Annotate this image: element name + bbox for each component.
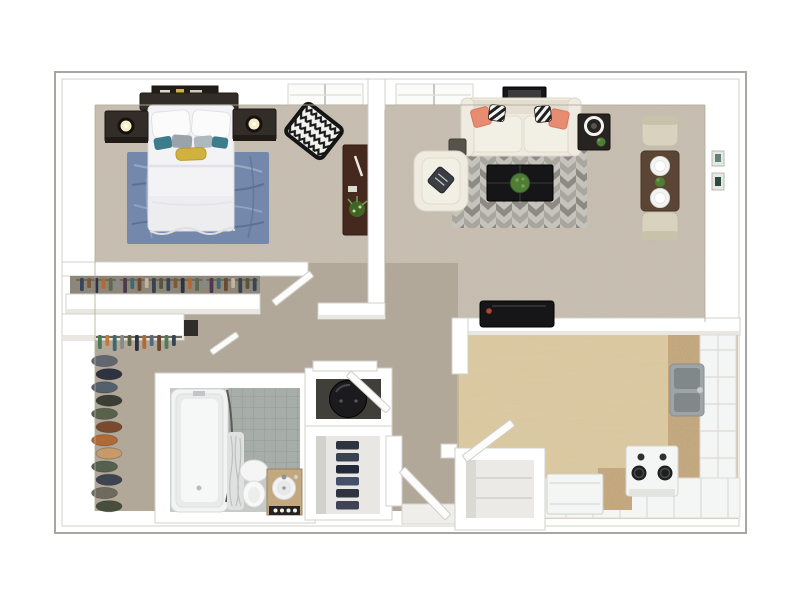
series-item: [181, 278, 185, 293]
series-item: [172, 335, 176, 346]
dishwasher: [547, 474, 603, 514]
series-item: [142, 335, 146, 349]
vanity-faucet: [282, 475, 287, 480]
series-item: [152, 278, 156, 293]
striped-pillow-right: [534, 105, 552, 123]
series-item: [336, 501, 359, 510]
accent-pillow-mustard: [176, 147, 206, 160]
bathtub: [171, 389, 232, 512]
series-item: [128, 335, 132, 346]
series-item: [224, 278, 228, 291]
series-item: [123, 278, 127, 293]
sofa: [461, 98, 581, 156]
accent-pillow-teal-right: [211, 136, 228, 149]
accent-pillow-gray: [172, 134, 193, 148]
series-item: [246, 278, 250, 289]
utility-closet: [305, 361, 392, 426]
kitchen-sink: [670, 364, 704, 416]
linen-closet: [305, 426, 392, 520]
series-item: [165, 335, 169, 349]
series-item: [336, 477, 359, 486]
series-item: [105, 335, 109, 346]
range-stove: [626, 446, 678, 496]
series-item: [96, 448, 122, 459]
series-item: [109, 278, 113, 291]
coffee-table-plant: [511, 174, 530, 193]
series-item: [253, 278, 257, 291]
kitchen-left-stub-wall: [452, 318, 468, 374]
table-centerpiece: [655, 177, 665, 187]
bed: [148, 105, 234, 234]
series-item: [336, 465, 359, 474]
series-item: [135, 335, 139, 351]
dining-chair-top: [642, 116, 678, 146]
series-item: [188, 278, 192, 289]
nightstand-right: [233, 109, 276, 141]
accent-chair: [414, 151, 468, 211]
series-item: [116, 278, 120, 288]
series-item: [120, 335, 124, 349]
pantry-closet: [441, 444, 545, 530]
series-item: [102, 278, 106, 289]
coffee-table: [487, 165, 553, 201]
accent-pillow-slate: [194, 135, 214, 149]
series-item: [217, 278, 221, 289]
dining-chair-bottom: [642, 212, 678, 240]
entry-jamb-wall: [386, 436, 402, 506]
series-item: [336, 453, 359, 462]
series-item: [138, 278, 142, 291]
series-item: [150, 335, 154, 346]
striped-pillow-left: [488, 104, 506, 122]
series-item: [113, 335, 117, 351]
series-item: [87, 278, 91, 288]
series-item: [336, 489, 359, 498]
series-item: [98, 335, 102, 349]
series-item: [336, 441, 359, 450]
closet-back-wall: [62, 262, 308, 276]
series-item: [174, 278, 178, 288]
series-item: [96, 369, 122, 380]
nightstand-left: [105, 111, 148, 143]
tub-drain: [197, 486, 202, 491]
floor-plan-rendering: [0, 0, 800, 600]
dining-set: [641, 116, 679, 240]
sink-faucet: [697, 387, 703, 393]
series-item: [238, 278, 242, 293]
bathroom: [155, 373, 315, 523]
series-item: [96, 474, 122, 485]
series-item: [195, 278, 199, 291]
series-item: [96, 395, 122, 406]
series-item: [130, 278, 134, 289]
series-item: [80, 278, 84, 291]
bed-pillow-right: [191, 109, 231, 138]
series-item: [202, 278, 206, 288]
bathroom-vanity: [267, 469, 302, 515]
tub-faucet: [193, 391, 205, 396]
series-item: [157, 335, 161, 351]
stove-drawer: [629, 489, 675, 495]
series-item: [159, 278, 163, 289]
series-item: [166, 278, 170, 291]
series-item: [96, 421, 122, 432]
side-table: [578, 114, 610, 150]
series-item: [96, 501, 122, 512]
bed-pillow-left: [151, 109, 191, 138]
tv-console: [480, 301, 554, 327]
series-item: [231, 278, 235, 288]
series-item: [210, 278, 214, 293]
bedroom-right-wall: [368, 79, 385, 305]
series-item: [145, 278, 149, 288]
